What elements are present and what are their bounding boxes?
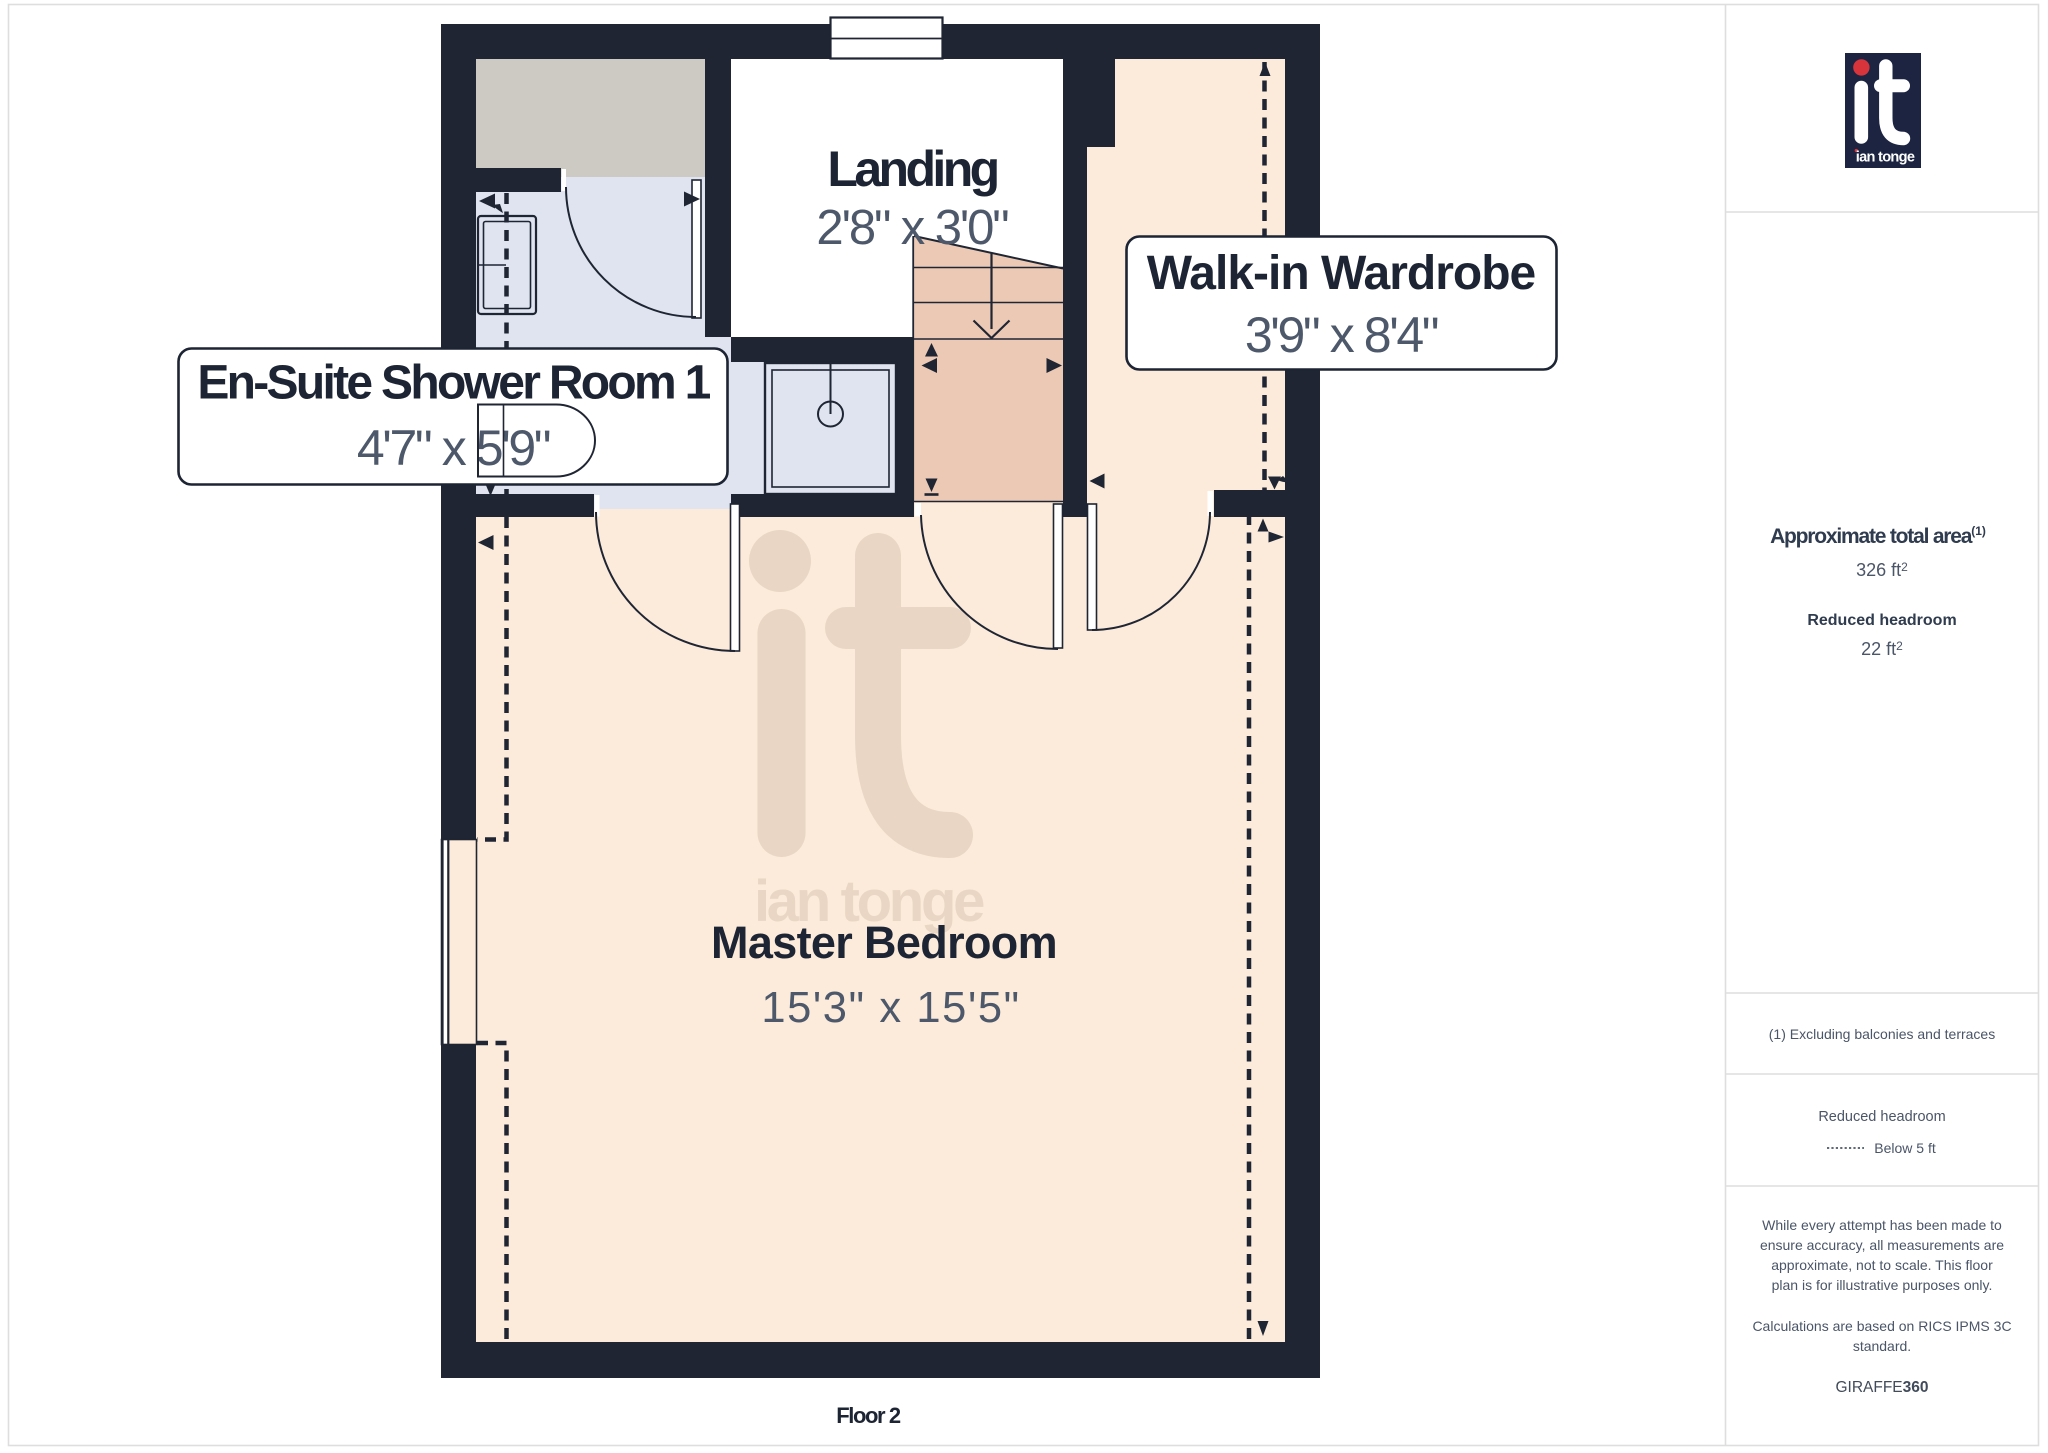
svg-text:standard.: standard. [1853,1338,1911,1354]
svg-text:En-Suite Shower Room 1: En-Suite Shower Room 1 [197,357,710,410]
svg-text:Calculations are based on RICS: Calculations are based on RICS IPMS 3C [1752,1318,2011,1334]
svg-text:Reduced headroom: Reduced headroom [1807,612,1956,629]
svg-text:approximate, not to scale. Thi: approximate, not to scale. This floor [1771,1257,1993,1273]
svg-text:ensure accuracy, all measureme: ensure accuracy, all measurements are [1760,1237,2004,1253]
svg-text:ian tonge: ian tonge [1856,150,1915,166]
svg-text:(1) Excluding balconies and te: (1) Excluding balconies and terraces [1769,1026,1995,1042]
svg-text:GIRAFFE360: GIRAFFE360 [1835,1379,1928,1396]
svg-text:While every attempt has been m: While every attempt has been made to [1762,1217,2002,1233]
svg-text:plan is for illustrative purpo: plan is for illustrative purposes only. [1772,1277,1993,1293]
svg-text:Master Bedroom: Master Bedroom [711,917,1057,968]
svg-text:3'9" x 8'4": 3'9" x 8'4" [1245,307,1438,363]
svg-text:4'7" x 5'9": 4'7" x 5'9" [357,420,550,476]
svg-text:Landing: Landing [827,141,997,197]
svg-text:326 ft2: 326 ft2 [1856,560,1908,580]
svg-text:Approximate total area(1): Approximate total area(1) [1770,524,1986,548]
svg-text:2'8" x 3'0": 2'8" x 3'0" [816,201,1008,255]
svg-text:15'3" x 15'5": 15'3" x 15'5" [761,984,1020,1032]
svg-text:Below 5 ft: Below 5 ft [1874,1140,1936,1156]
svg-text:Reduced headroom: Reduced headroom [1818,1109,1945,1125]
svg-text:Floor 2: Floor 2 [836,1403,901,1428]
svg-text:Walk-in Wardrobe: Walk-in Wardrobe [1147,247,1536,300]
